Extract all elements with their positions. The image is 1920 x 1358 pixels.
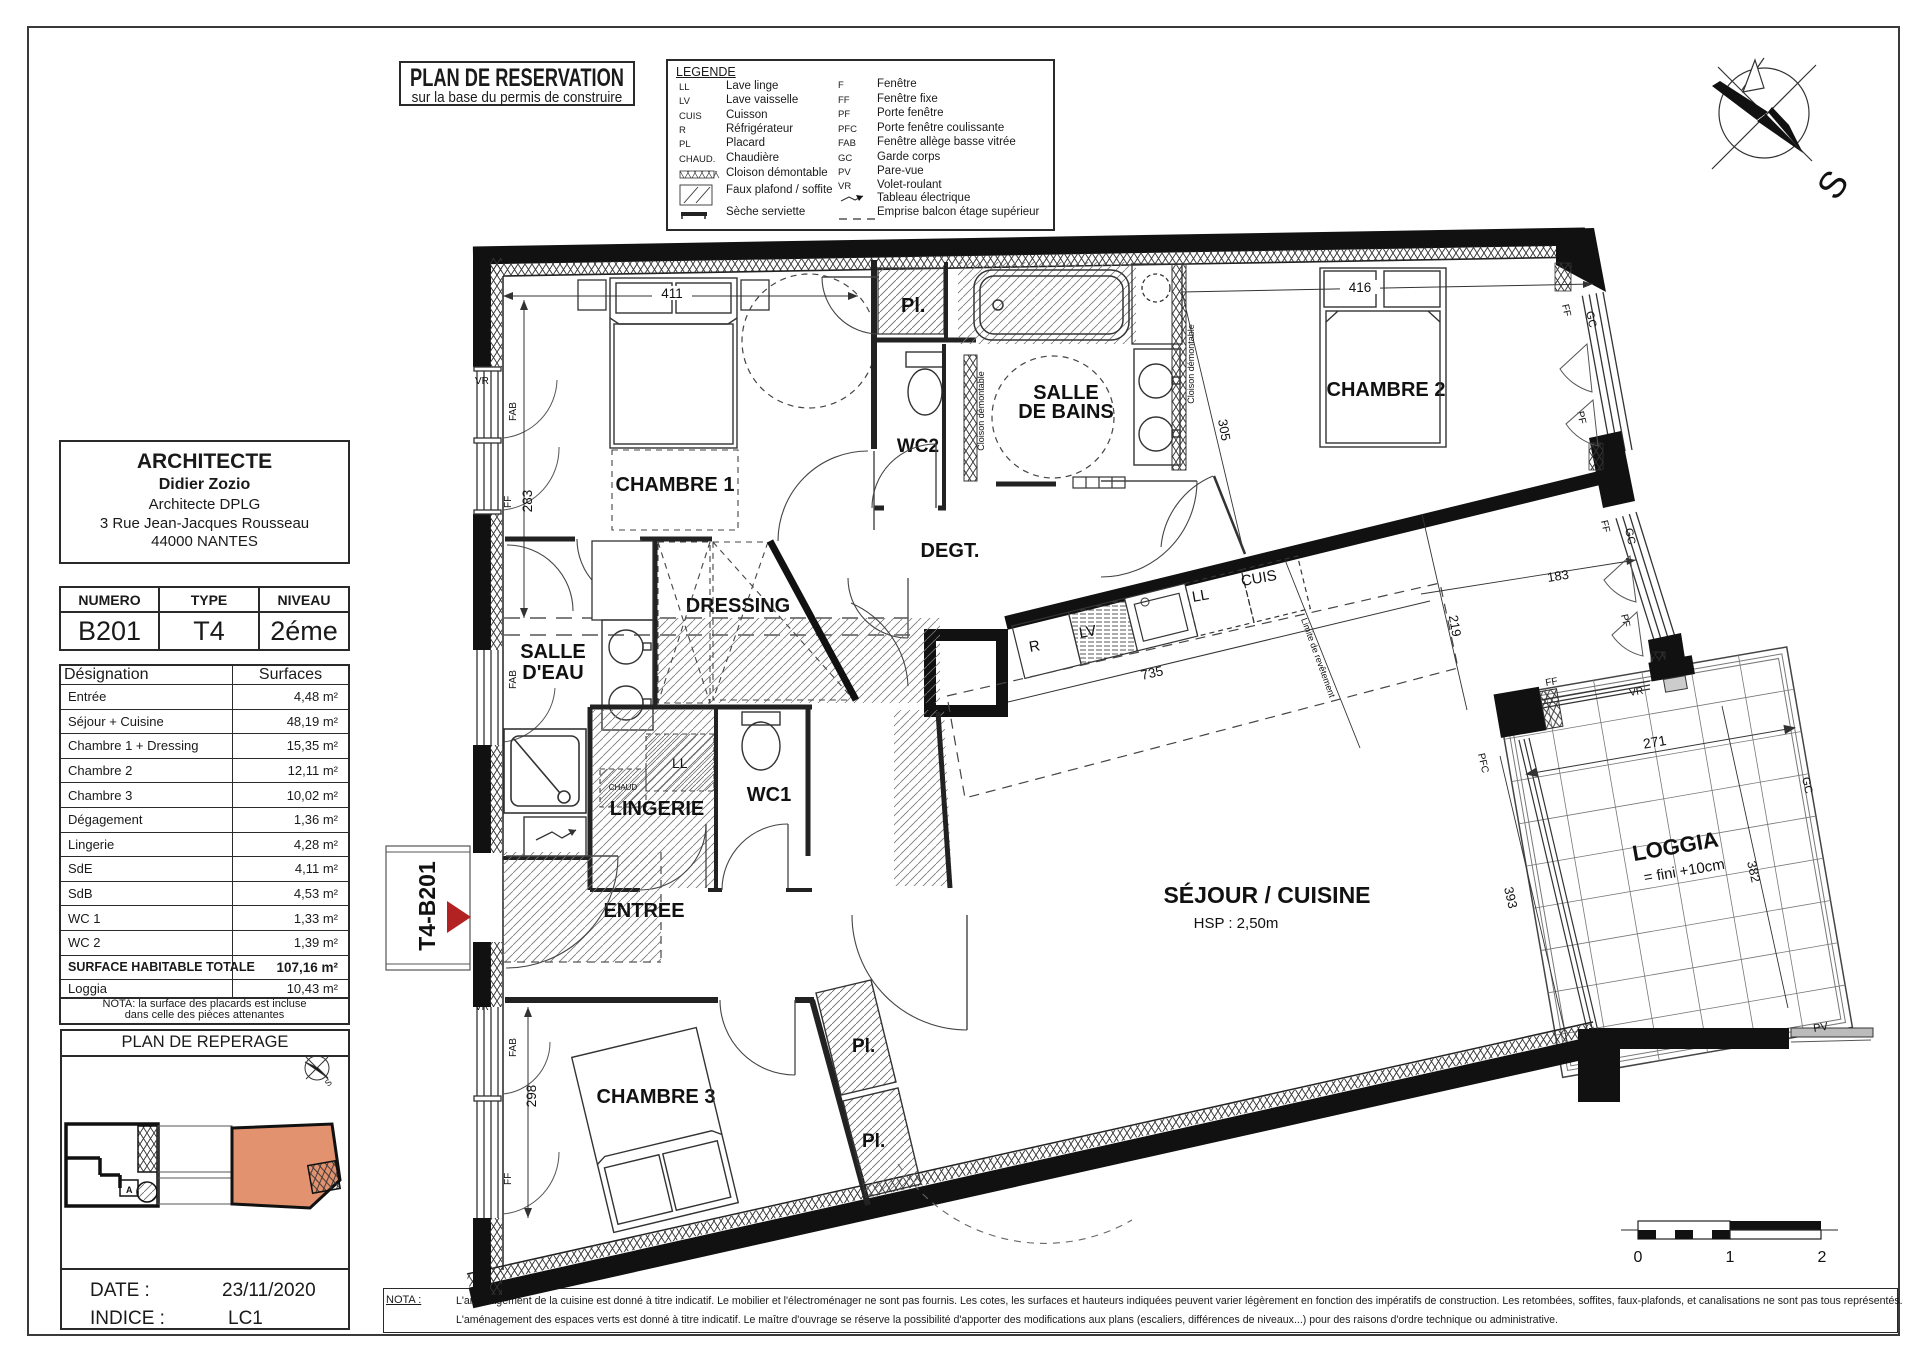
svg-text:SALLE: SALLE	[520, 641, 586, 663]
svg-text:PFC: PFC	[1475, 752, 1490, 774]
svg-text:D'EAU: D'EAU	[522, 662, 583, 684]
svg-text:283: 283	[520, 490, 535, 513]
svg-text:VR: VR	[475, 1002, 489, 1013]
svg-text:A: A	[126, 1185, 133, 1195]
svg-text:ENTREE: ENTREE	[603, 900, 684, 922]
svg-text:CHAMBRE 1: CHAMBRE 1	[616, 474, 735, 496]
svg-text:CHAMBRE 3: CHAMBRE 3	[597, 1086, 716, 1108]
svg-text:FF: FF	[1559, 303, 1572, 317]
svg-text:393: 393	[1501, 885, 1520, 910]
svg-text:305: 305	[1215, 418, 1234, 442]
svg-text:T4-B201: T4-B201	[414, 861, 440, 951]
svg-text:S: S	[323, 1077, 334, 1089]
svg-text:1: 1	[1726, 1249, 1735, 1266]
svg-text:Cloison démontable: Cloison démontable	[976, 371, 986, 451]
svg-text:SÉJOUR / CUISINE: SÉJOUR / CUISINE	[1163, 881, 1370, 908]
svg-text:PF: PF	[1574, 410, 1588, 425]
svg-text:WC1: WC1	[747, 784, 791, 806]
svg-text:FF: FF	[1545, 676, 1559, 689]
svg-text:416: 416	[1349, 280, 1372, 295]
svg-text:Pl.: Pl.	[901, 295, 925, 317]
svg-text:Limite de revêtement: Limite de revêtement	[1299, 617, 1337, 700]
svg-text:219: 219	[1446, 614, 1465, 638]
svg-text:298: 298	[524, 1085, 539, 1108]
svg-text:VR: VR	[1647, 647, 1661, 663]
svg-text:PF: PF	[1618, 613, 1632, 628]
svg-text:LL: LL	[1191, 586, 1210, 606]
svg-text:735: 735	[1139, 663, 1164, 683]
svg-text:CHAUD: CHAUD	[609, 783, 638, 792]
svg-text:LV: LV	[1078, 622, 1098, 642]
svg-text:HSP : 2,50m: HSP : 2,50m	[1194, 915, 1279, 932]
svg-text:LINGERIE: LINGERIE	[610, 798, 704, 820]
svg-text:DEGT.: DEGT.	[921, 540, 980, 562]
svg-text:FF: FF	[503, 1173, 514, 1185]
svg-text:Cloison démontable: Cloison démontable	[1186, 324, 1196, 404]
svg-text:FAB: FAB	[508, 402, 519, 421]
svg-text:GC: GC	[1583, 310, 1598, 329]
svg-text:FF: FF	[1598, 519, 1611, 533]
svg-text:DRESSING: DRESSING	[686, 595, 790, 617]
svg-text:FF: FF	[503, 496, 514, 508]
svg-text:R: R	[1028, 637, 1042, 656]
svg-text:LL: LL	[672, 755, 688, 771]
svg-text:DE BAINS: DE BAINS	[1018, 401, 1114, 423]
svg-text:2: 2	[1818, 1249, 1827, 1266]
svg-text:VR: VR	[475, 376, 489, 387]
svg-text:0: 0	[1634, 1249, 1643, 1266]
svg-text:S: S	[1809, 163, 1857, 207]
svg-text:Pl.: Pl.	[862, 1131, 885, 1152]
svg-text:CHAMBRE 2: CHAMBRE 2	[1327, 379, 1446, 401]
svg-text:183: 183	[1546, 567, 1570, 585]
svg-text:FAB: FAB	[508, 1038, 519, 1057]
svg-text:FAB: FAB	[508, 670, 519, 689]
svg-text:411: 411	[661, 286, 683, 301]
svg-text:Pl.: Pl.	[852, 1036, 875, 1057]
